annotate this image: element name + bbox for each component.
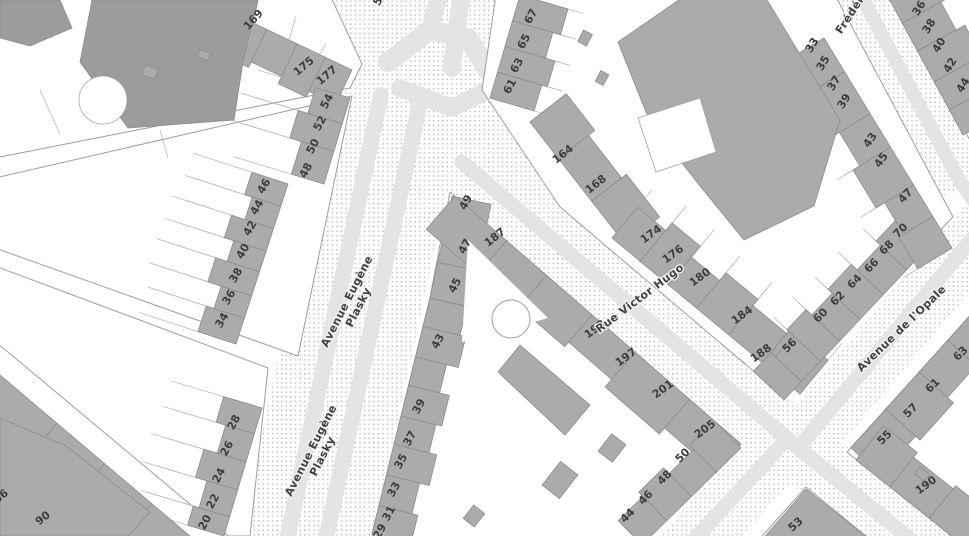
map-svg[interactable]: 5452504846444240383634169175177528262422… (0, 0, 969, 536)
map-canvas[interactable]: 5452504846444240383634169175177528262422… (0, 0, 969, 536)
